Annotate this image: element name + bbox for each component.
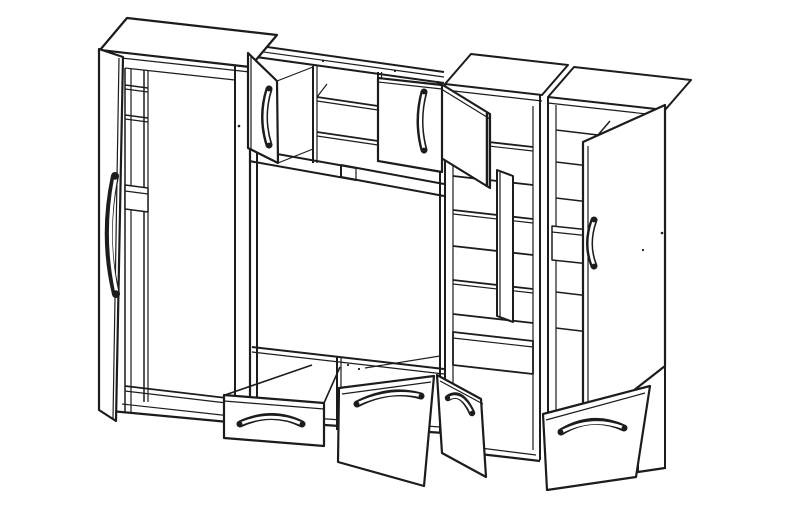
right-bottom-handle-cap-right — [622, 426, 627, 431]
wallcab-left-handle-cap-bottom — [267, 143, 272, 148]
flap-handle-cap-right — [419, 394, 424, 399]
open-base-door — [437, 375, 486, 477]
wallcab-right-handle-cap-top — [422, 90, 427, 95]
display-shelf-5 — [453, 280, 533, 289]
flap-handle-cap-left — [355, 402, 360, 407]
tv-base-top-inner — [252, 352, 444, 374]
right-bottom-handle-cap-left — [559, 430, 564, 435]
drawer-handle-cap-right — [300, 422, 305, 427]
display-shelf-4 — [453, 246, 533, 255]
print-speck-2 — [661, 232, 664, 235]
print-speck-7 — [394, 70, 396, 72]
wardrobe-interior-top — [125, 68, 235, 80]
display-bottom-drawer-box — [453, 332, 533, 374]
print-speck-3 — [642, 249, 644, 251]
wallcab-bottom-rail-bottom — [249, 161, 356, 180]
print-speck-4 — [347, 364, 349, 366]
base-door-handle-cap-top — [446, 396, 450, 400]
wallcab-shelf-lower — [317, 132, 378, 141]
right-cabinet-door-handle-cap-top — [592, 218, 597, 223]
display-shelf-2 — [453, 176, 533, 185]
right-cabinet-bottom-door — [543, 386, 650, 490]
wallcab-left-door-gap-top — [277, 67, 313, 81]
midwall-top-rail-front — [249, 56, 444, 83]
print-speck-6 — [322, 60, 324, 62]
wallcab-left-handle-cap-top — [267, 87, 272, 92]
furniture-line-drawing-canvas — [0, 0, 787, 505]
wallcab-right-handle-cap-bottom — [422, 148, 427, 153]
print-speck-5 — [358, 368, 360, 370]
display-shelf-6 — [453, 314, 533, 323]
wardrobe-plinth-line — [122, 404, 240, 417]
wallcab-shelf-upper — [317, 97, 378, 106]
midwall-top-rail-back — [246, 44, 444, 72]
print-speck-1 — [238, 125, 241, 128]
right-cabinet-top-panel — [548, 67, 691, 110]
wallcab-right-door — [378, 78, 442, 172]
midwall-top-rail-mid — [249, 50, 444, 77]
right-cabinet-door-handle-cap-bottom — [592, 264, 597, 269]
display-cabinet-top-panel — [445, 54, 568, 95]
wardrobe-shelf-box — [125, 185, 148, 212]
display-shelf-3 — [453, 210, 533, 219]
drawer-side-top-edge — [225, 365, 312, 395]
furniture-illustration — [0, 0, 787, 505]
wallcab-shelf-depth-tick-left — [317, 84, 327, 97]
drawer-handle-cap-left — [238, 422, 243, 427]
wardrobe-door-handle-cap-top — [112, 174, 118, 180]
base-door-handle-cap-bottom — [470, 411, 474, 415]
wardrobe-door-handle-cap-bottom — [113, 290, 119, 296]
